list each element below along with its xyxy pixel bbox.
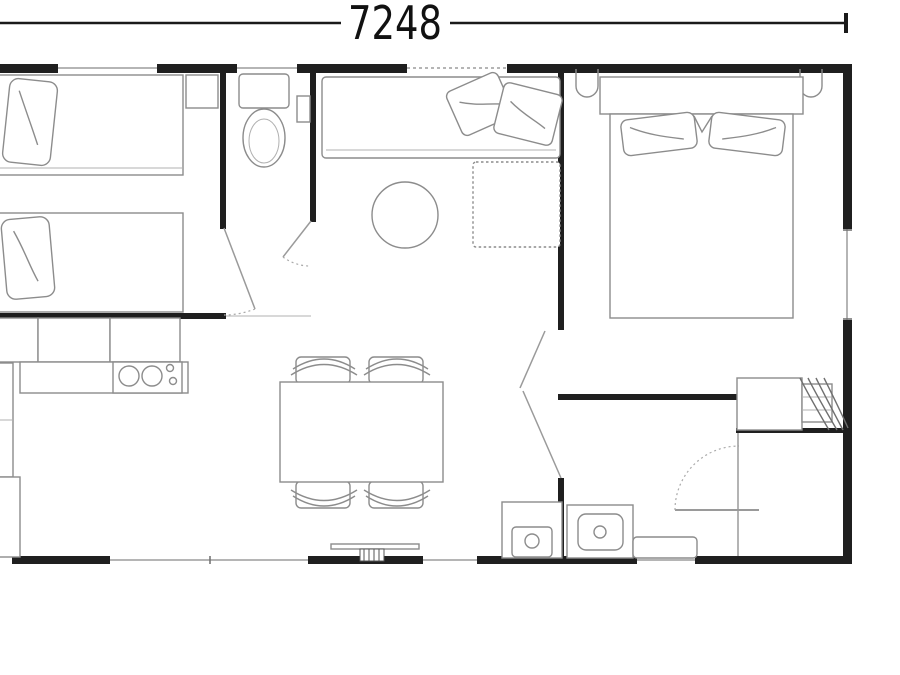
dimension: 7248: [0, 0, 847, 50]
kitchen-cabinet-2: [38, 318, 110, 362]
shower-tray: [512, 527, 552, 557]
bathroom-door-swing: [675, 446, 739, 510]
wc-room: [239, 74, 310, 167]
wall-wc-right: [310, 64, 316, 222]
kitchen-cabinet-3: [110, 318, 180, 362]
dining-table: [280, 382, 443, 482]
entry-threshold: [331, 544, 419, 549]
wall-kids-bedroom-right: [220, 64, 226, 229]
pillow-bed-2: [1, 216, 56, 300]
folding-door-leaf-1: [520, 331, 545, 388]
dimension-label: 7248: [348, 0, 442, 50]
dining-chair-bottom-left: [291, 481, 357, 508]
right-wall-segment-2: [843, 320, 852, 564]
pillow-icon: [1, 216, 56, 300]
coffee-table: [372, 182, 438, 248]
master-bedroom: [576, 69, 822, 318]
chair-seat: [369, 357, 423, 384]
living-room: [322, 71, 563, 248]
pillow-bed-1: [2, 78, 59, 167]
chair-seat: [369, 481, 423, 508]
storage-bench: [633, 537, 697, 558]
wc-door-leaf: [283, 221, 311, 257]
bottom-wall-segment-1: [12, 556, 110, 564]
toilet-cistern: [239, 74, 289, 108]
heater-niche: [737, 378, 848, 430]
kitchen-cabinet-1: [0, 318, 38, 362]
dining-area: [280, 357, 443, 508]
fridge-unit: [0, 477, 20, 557]
dining-chair-top-left: [291, 357, 357, 384]
kids-bedroom-door-leaf: [224, 228, 255, 309]
wc-door-swing: [283, 257, 311, 266]
bathroom: [502, 502, 697, 558]
dining-chair-bottom-right: [364, 481, 430, 508]
chair-seat: [296, 357, 350, 384]
nightstand-kids: [186, 75, 218, 108]
water-heater: [737, 378, 802, 430]
washbasin: [578, 514, 623, 550]
headboard: [600, 77, 803, 114]
kids-bedroom: [0, 75, 218, 312]
bottom-wall-segment-4: [695, 556, 852, 564]
chair-seat: [296, 481, 350, 508]
wall-shelf: [297, 96, 310, 122]
kitchen: [0, 318, 188, 557]
dining-chair-top-right: [364, 357, 430, 384]
chaise-ottoman: [473, 162, 560, 247]
floor-plan: 7248: [0, 0, 900, 675]
top-wall-segment-1: [0, 64, 58, 73]
right-wall-segment-1: [843, 64, 852, 229]
bedside-sconce-left: [576, 69, 598, 97]
folding-door-leaf-2: [523, 391, 561, 478]
floor-plan-drawing: 7248: [0, 0, 900, 675]
wall-master-bedroom-bottom: [558, 394, 738, 400]
kids-bedroom-door-swing: [224, 309, 255, 315]
